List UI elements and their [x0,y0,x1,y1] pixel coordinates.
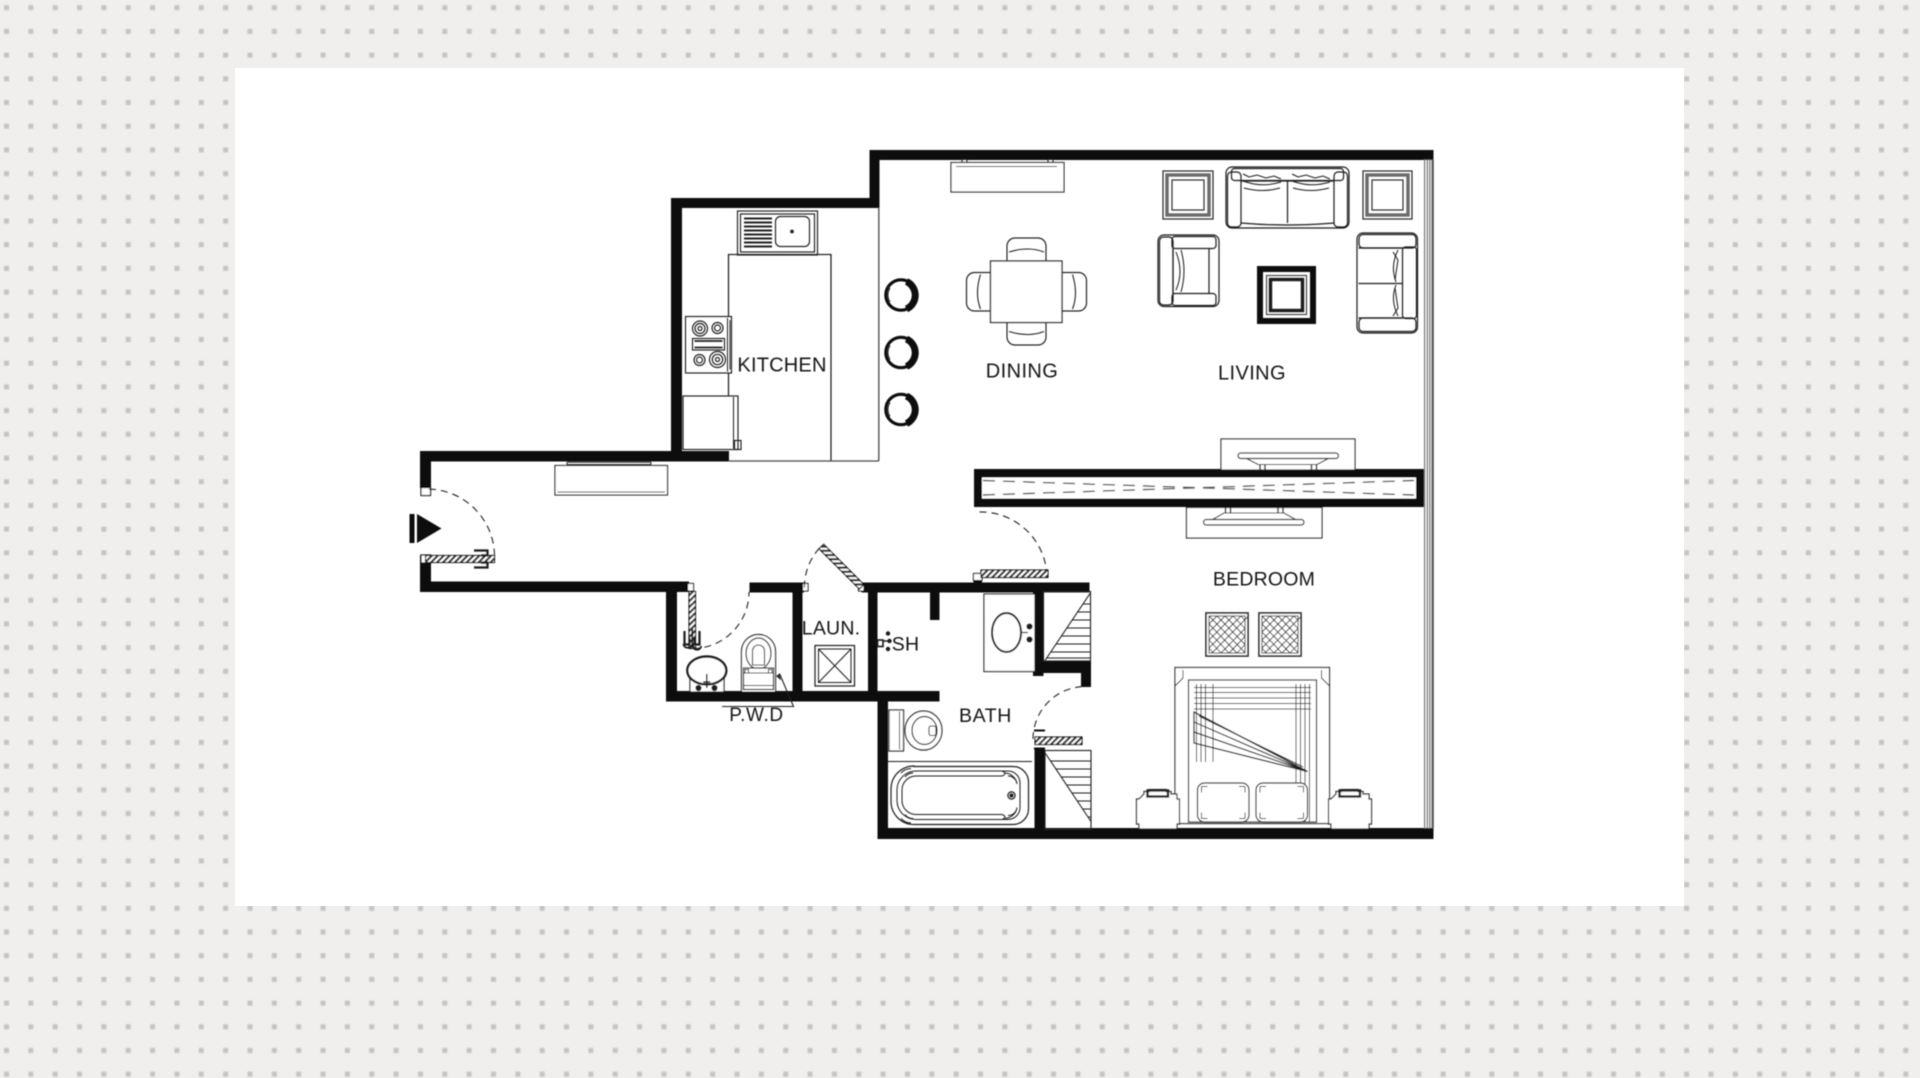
svg-text:LAUN.: LAUN. [802,618,860,640]
svg-text:SH: SH [892,634,920,656]
svg-text:KITCHEN: KITCHEN [737,355,826,377]
svg-text:DINING: DINING [986,361,1058,383]
svg-text:P.W.D: P.W.D [729,705,783,726]
svg-text:BATH: BATH [959,705,1012,727]
svg-text:LIVING: LIVING [1218,363,1286,385]
svg-text:BEDROOM: BEDROOM [1213,569,1315,591]
